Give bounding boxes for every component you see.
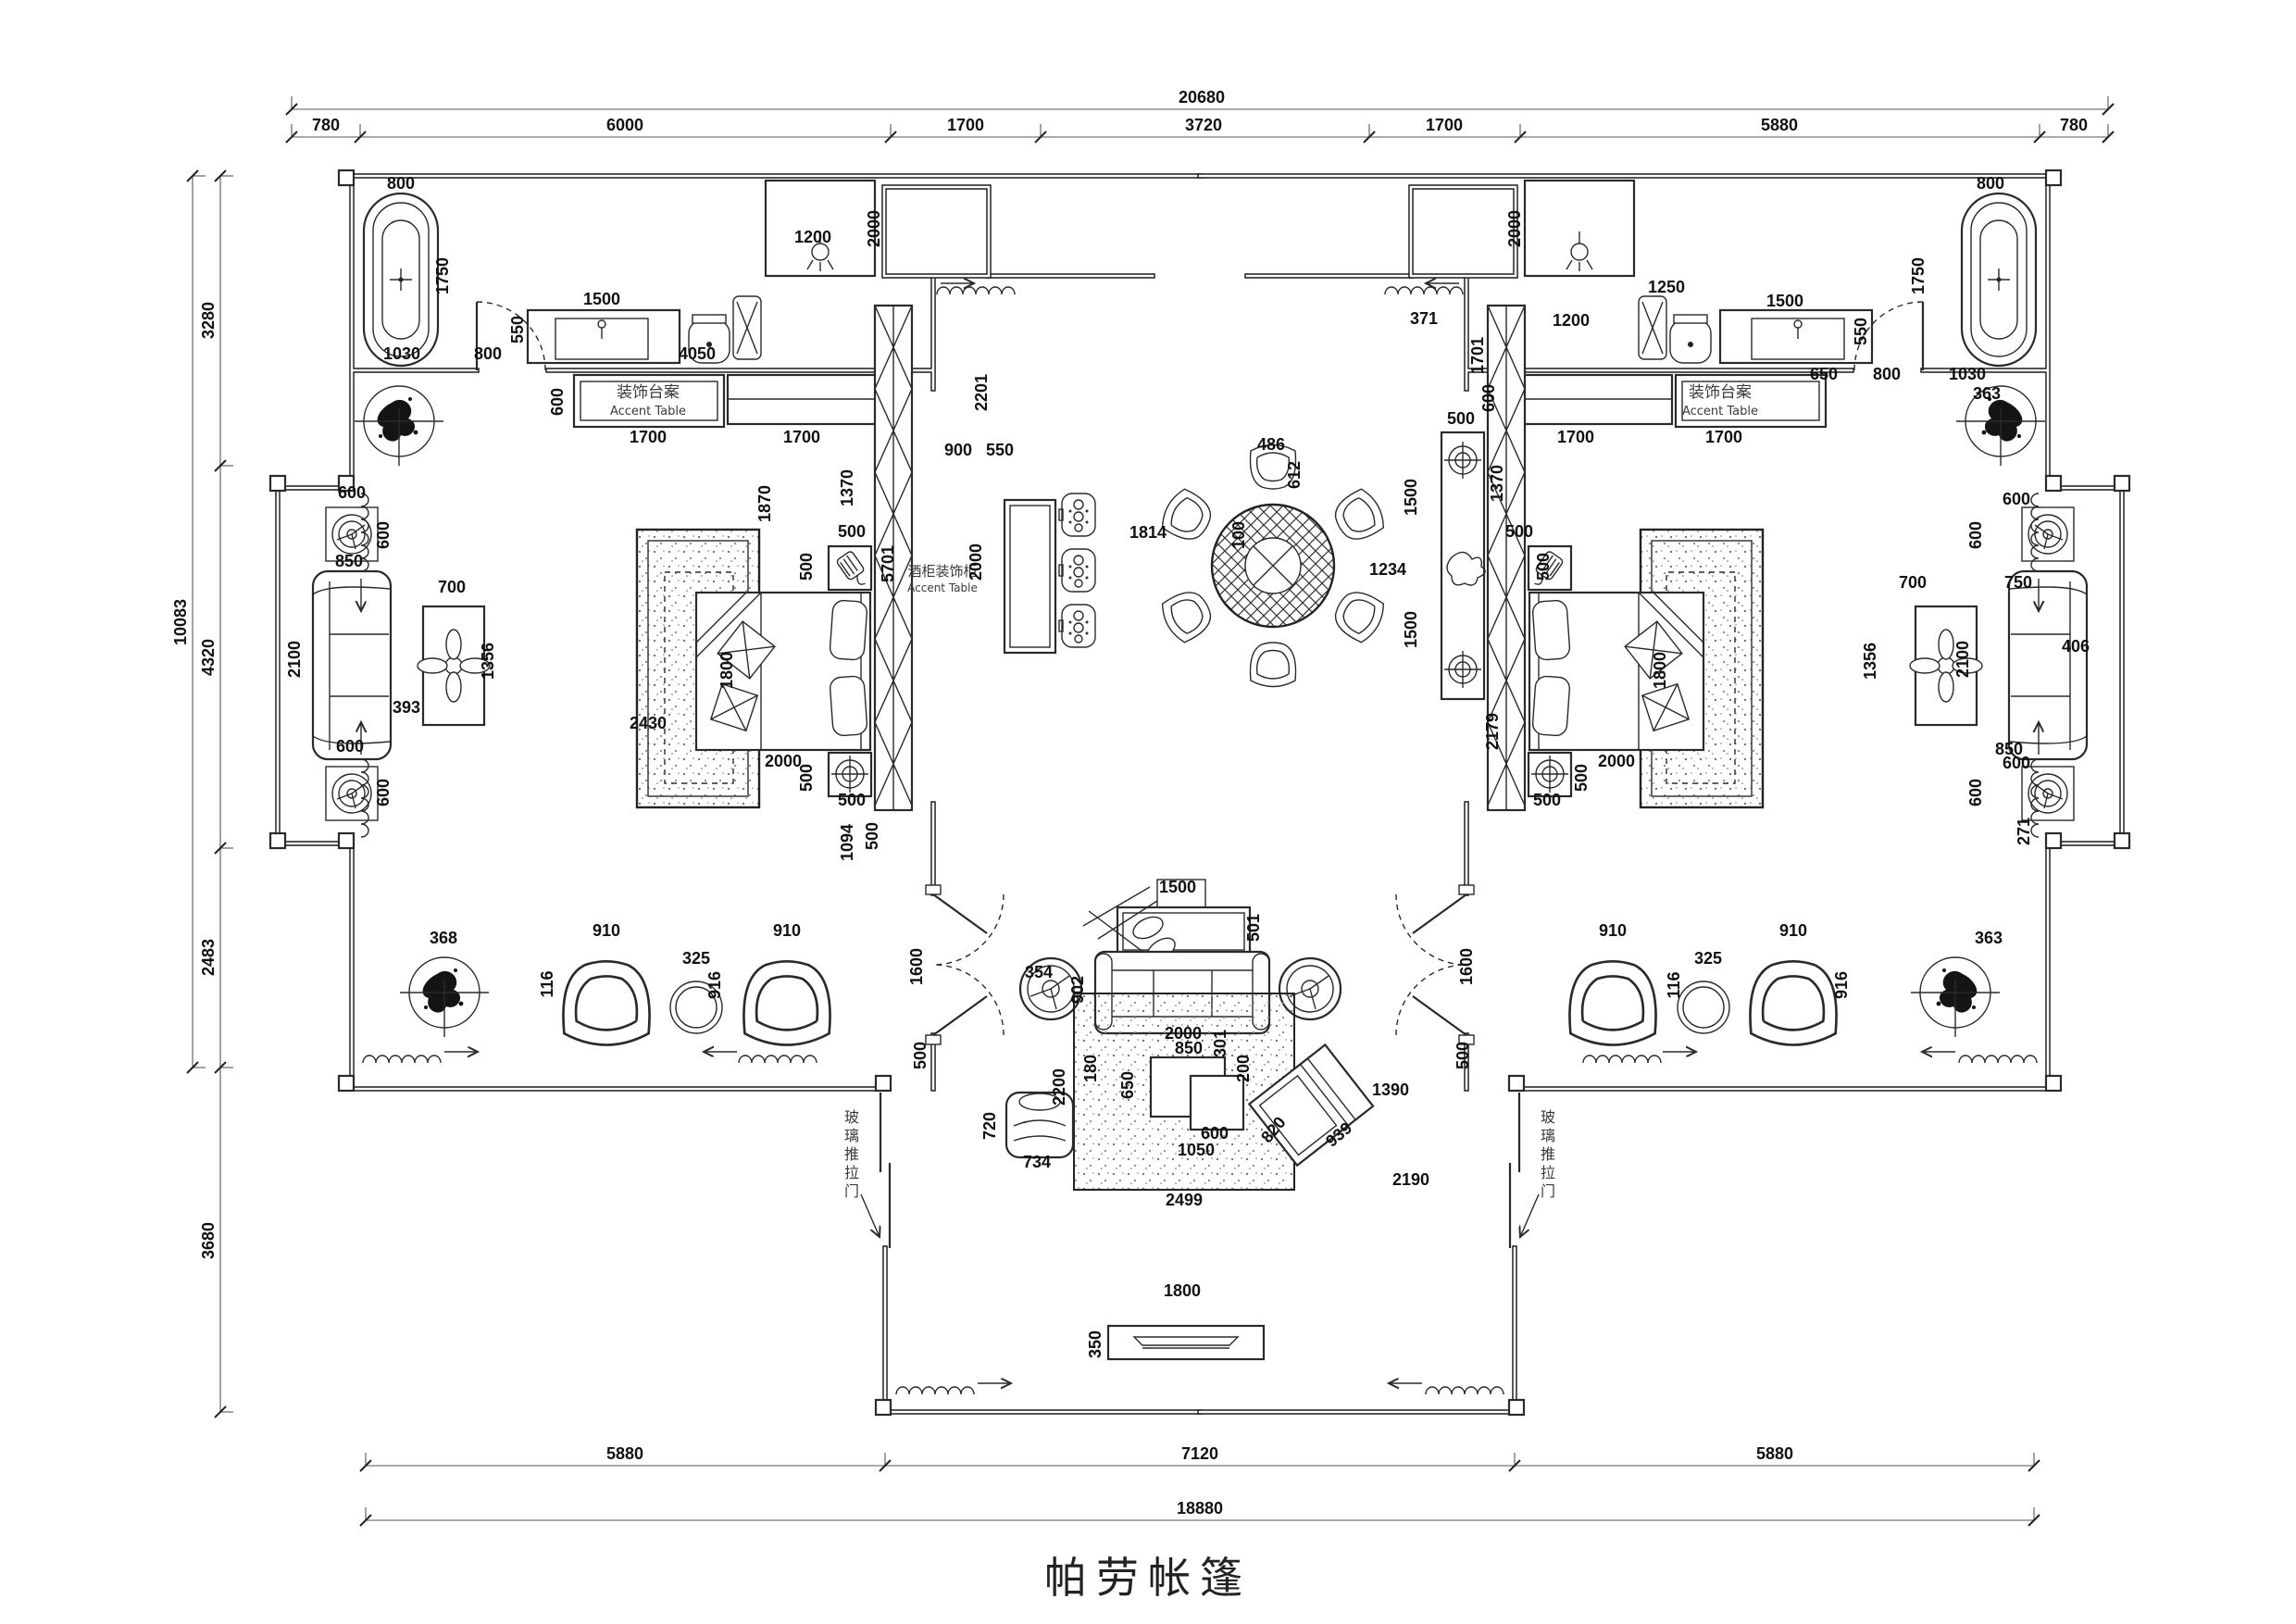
- svg-text:800: 800: [387, 174, 415, 193]
- svg-text:4050: 4050: [679, 344, 716, 363]
- svg-text:1870: 1870: [755, 485, 774, 522]
- svg-text:7120: 7120: [1181, 1444, 1218, 1463]
- svg-text:650: 650: [1118, 1071, 1137, 1099]
- svg-text:1701: 1701: [1468, 337, 1487, 374]
- svg-text:3680: 3680: [199, 1222, 218, 1259]
- svg-text:1500: 1500: [1159, 878, 1196, 896]
- svg-text:600: 600: [2003, 754, 2030, 772]
- svg-text:902: 902: [1068, 976, 1087, 1004]
- svg-text:720: 720: [980, 1112, 999, 1140]
- svg-text:700: 700: [1899, 573, 1927, 592]
- svg-text:10083: 10083: [171, 599, 190, 645]
- floorplan-canvas: 2068078060001700372017005880780100833280…: [0, 0, 2296, 1624]
- floorplan-drawing: 2068078060001700372017005880780100833280…: [0, 0, 2296, 1624]
- svg-text:363: 363: [1975, 929, 2003, 947]
- svg-text:装饰台案: 装饰台案: [617, 383, 680, 402]
- svg-text:116: 116: [538, 970, 556, 997]
- svg-text:550: 550: [1852, 318, 1870, 345]
- svg-text:1050: 1050: [1178, 1141, 1215, 1159]
- svg-text:500: 500: [1505, 522, 1533, 541]
- svg-text:500: 500: [1572, 764, 1591, 792]
- svg-text:612: 612: [1285, 461, 1304, 489]
- svg-text:800: 800: [1977, 174, 2004, 193]
- svg-text:350: 350: [1086, 1330, 1104, 1358]
- svg-text:500: 500: [797, 764, 816, 792]
- stool: [1059, 605, 1095, 647]
- svg-text:500: 500: [1447, 409, 1475, 428]
- svg-text:600: 600: [1479, 384, 1498, 412]
- decor-console-strip: [1441, 432, 1485, 699]
- svg-text:1700: 1700: [1426, 116, 1463, 134]
- svg-text:500: 500: [838, 791, 866, 809]
- svg-text:Accent Table: Accent Table: [610, 405, 686, 418]
- svg-text:1750: 1750: [1909, 257, 1928, 294]
- svg-text:1700: 1700: [783, 428, 820, 446]
- svg-text:363: 363: [1973, 384, 2001, 403]
- svg-text:600: 600: [548, 388, 567, 416]
- svg-text:500: 500: [797, 553, 816, 581]
- svg-text:910: 910: [773, 921, 801, 940]
- svg-text:1370: 1370: [1488, 465, 1506, 502]
- svg-text:600: 600: [374, 521, 393, 549]
- svg-text:Accent Table: Accent Table: [1682, 405, 1758, 418]
- svg-text:1370: 1370: [838, 469, 856, 506]
- svg-text:486: 486: [1257, 435, 1285, 454]
- svg-text:600: 600: [338, 483, 366, 502]
- stool: [1059, 493, 1095, 536]
- svg-text:1700: 1700: [1557, 428, 1594, 446]
- svg-text:18880: 18880: [1177, 1499, 1223, 1518]
- svg-text:800: 800: [474, 344, 502, 363]
- center-hall: [1004, 432, 1485, 1359]
- svg-text:850: 850: [1175, 1039, 1203, 1057]
- svg-text:650: 650: [1810, 365, 1838, 383]
- svg-text:2179: 2179: [1483, 713, 1502, 750]
- svg-text:800: 800: [1873, 365, 1901, 383]
- svg-text:1700: 1700: [1705, 428, 1742, 446]
- svg-text:2000: 2000: [1598, 752, 1635, 770]
- svg-text:368: 368: [430, 929, 457, 947]
- svg-text:500: 500: [838, 522, 866, 541]
- svg-text:550: 550: [986, 441, 1014, 459]
- svg-text:2100: 2100: [285, 641, 304, 678]
- svg-text:2200: 2200: [1050, 1068, 1068, 1106]
- svg-text:116: 116: [1665, 971, 1683, 998]
- svg-text:100: 100: [1229, 521, 1248, 549]
- svg-text:2201: 2201: [972, 374, 991, 411]
- svg-text:6000: 6000: [606, 116, 643, 134]
- svg-text:750: 750: [2004, 573, 2032, 592]
- svg-text:550: 550: [508, 316, 527, 344]
- svg-text:1750: 1750: [433, 257, 452, 294]
- svg-text:910: 910: [1599, 921, 1627, 940]
- svg-text:20680: 20680: [1179, 88, 1225, 106]
- svg-text:1500: 1500: [583, 290, 620, 308]
- svg-text:393: 393: [393, 698, 420, 717]
- stool: [1059, 549, 1095, 592]
- svg-text:600: 600: [1966, 521, 1985, 549]
- svg-text:500: 500: [1533, 791, 1561, 809]
- svg-text:371: 371: [1410, 309, 1438, 328]
- svg-text:5880: 5880: [1756, 1444, 1793, 1463]
- svg-text:916: 916: [705, 971, 724, 999]
- svg-text:3280: 3280: [199, 302, 218, 339]
- svg-text:325: 325: [682, 949, 710, 968]
- svg-text:2100: 2100: [1953, 641, 1972, 678]
- drawing-title: 帕劳帐篷: [0, 1544, 2296, 1605]
- svg-text:600: 600: [374, 779, 393, 806]
- svg-text:玻璃推拉门: 玻璃推拉门: [844, 1108, 859, 1200]
- svg-text:2000: 2000: [967, 543, 985, 581]
- svg-text:500: 500: [863, 822, 881, 850]
- svg-text:500: 500: [1454, 1042, 1472, 1069]
- svg-text:301: 301: [1211, 1030, 1229, 1057]
- svg-text:1600: 1600: [907, 948, 926, 985]
- svg-text:1814: 1814: [1129, 523, 1167, 542]
- svg-text:1800: 1800: [1164, 1281, 1201, 1300]
- svg-text:600: 600: [2003, 490, 2030, 508]
- svg-text:910: 910: [593, 921, 620, 940]
- svg-text:1800: 1800: [717, 652, 736, 689]
- tv-console: [1108, 1326, 1264, 1359]
- svg-text:780: 780: [312, 116, 340, 134]
- svg-text:1234: 1234: [1369, 560, 1406, 579]
- svg-text:500: 500: [1534, 553, 1553, 581]
- svg-text:916: 916: [1832, 971, 1851, 999]
- svg-text:1500: 1500: [1402, 479, 1420, 516]
- svg-text:325: 325: [1694, 949, 1722, 968]
- svg-text:1200: 1200: [794, 228, 831, 246]
- dimension-labels: 2068078060001700372017005880780100833280…: [171, 88, 2114, 1526]
- hall-console-table: [1004, 500, 1055, 653]
- svg-text:200: 200: [1234, 1055, 1253, 1082]
- svg-text:850: 850: [335, 552, 363, 570]
- svg-text:1356: 1356: [479, 643, 497, 680]
- svg-text:1094: 1094: [838, 824, 856, 861]
- svg-text:1200: 1200: [1553, 311, 1590, 330]
- svg-text:装饰台案: 装饰台案: [1689, 383, 1752, 402]
- svg-text:271: 271: [2015, 818, 2033, 845]
- svg-text:354: 354: [1025, 963, 1053, 981]
- svg-text:734: 734: [1023, 1153, 1051, 1171]
- svg-text:2483: 2483: [199, 939, 218, 976]
- svg-text:5701: 5701: [879, 545, 897, 582]
- svg-text:501: 501: [1244, 914, 1263, 942]
- svg-text:600: 600: [336, 737, 364, 756]
- svg-text:Accent Table: Accent Table: [907, 581, 978, 594]
- svg-text:600: 600: [1201, 1124, 1229, 1143]
- svg-text:1800: 1800: [1651, 652, 1669, 689]
- svg-text:2430: 2430: [630, 714, 667, 732]
- right-unit: [1200, 170, 2129, 1415]
- svg-text:2000: 2000: [865, 210, 883, 247]
- svg-text:3720: 3720: [1185, 116, 1222, 134]
- svg-text:406: 406: [2062, 637, 2090, 656]
- svg-text:5880: 5880: [1761, 116, 1798, 134]
- svg-text:1600: 1600: [1457, 948, 1476, 985]
- svg-text:500: 500: [911, 1042, 930, 1069]
- svg-text:1500: 1500: [1402, 611, 1420, 648]
- svg-text:1356: 1356: [1861, 643, 1879, 680]
- svg-text:1390: 1390: [1372, 1081, 1409, 1099]
- svg-text:2190: 2190: [1392, 1170, 1429, 1189]
- svg-text:910: 910: [1779, 921, 1807, 940]
- svg-text:2499: 2499: [1166, 1191, 1203, 1209]
- svg-text:1250: 1250: [1648, 278, 1685, 296]
- svg-text:1030: 1030: [1949, 365, 1986, 383]
- svg-text:1700: 1700: [947, 116, 984, 134]
- svg-text:1500: 1500: [1766, 292, 1803, 310]
- svg-text:900: 900: [944, 441, 972, 459]
- svg-text:780: 780: [2060, 116, 2088, 134]
- svg-text:5880: 5880: [606, 1444, 643, 1463]
- svg-text:1700: 1700: [630, 428, 667, 446]
- svg-text:玻璃推拉门: 玻璃推拉门: [1541, 1108, 1555, 1200]
- svg-text:4320: 4320: [199, 639, 218, 676]
- svg-text:700: 700: [438, 578, 466, 596]
- svg-text:1030: 1030: [383, 344, 420, 363]
- svg-text:600: 600: [1966, 779, 1985, 806]
- svg-text:180: 180: [1081, 1055, 1100, 1082]
- svg-text:2000: 2000: [1505, 210, 1524, 247]
